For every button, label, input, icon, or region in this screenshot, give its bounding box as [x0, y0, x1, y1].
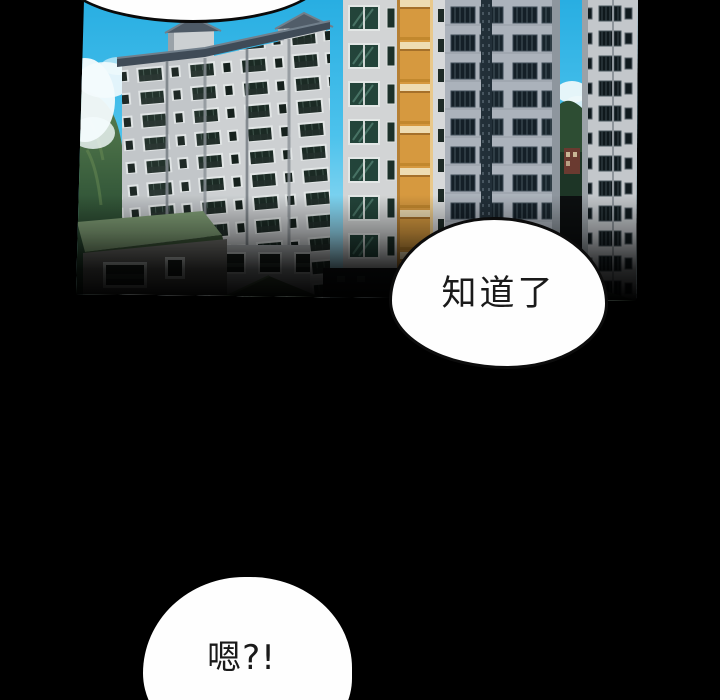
comic-page: 知道了 嗯?!	[0, 0, 720, 700]
speech-bubble-bottom: 嗯?!	[143, 577, 352, 700]
speech-text-bottom: 嗯?!	[207, 630, 276, 679]
speech-text-middle: 知道了	[441, 265, 555, 316]
